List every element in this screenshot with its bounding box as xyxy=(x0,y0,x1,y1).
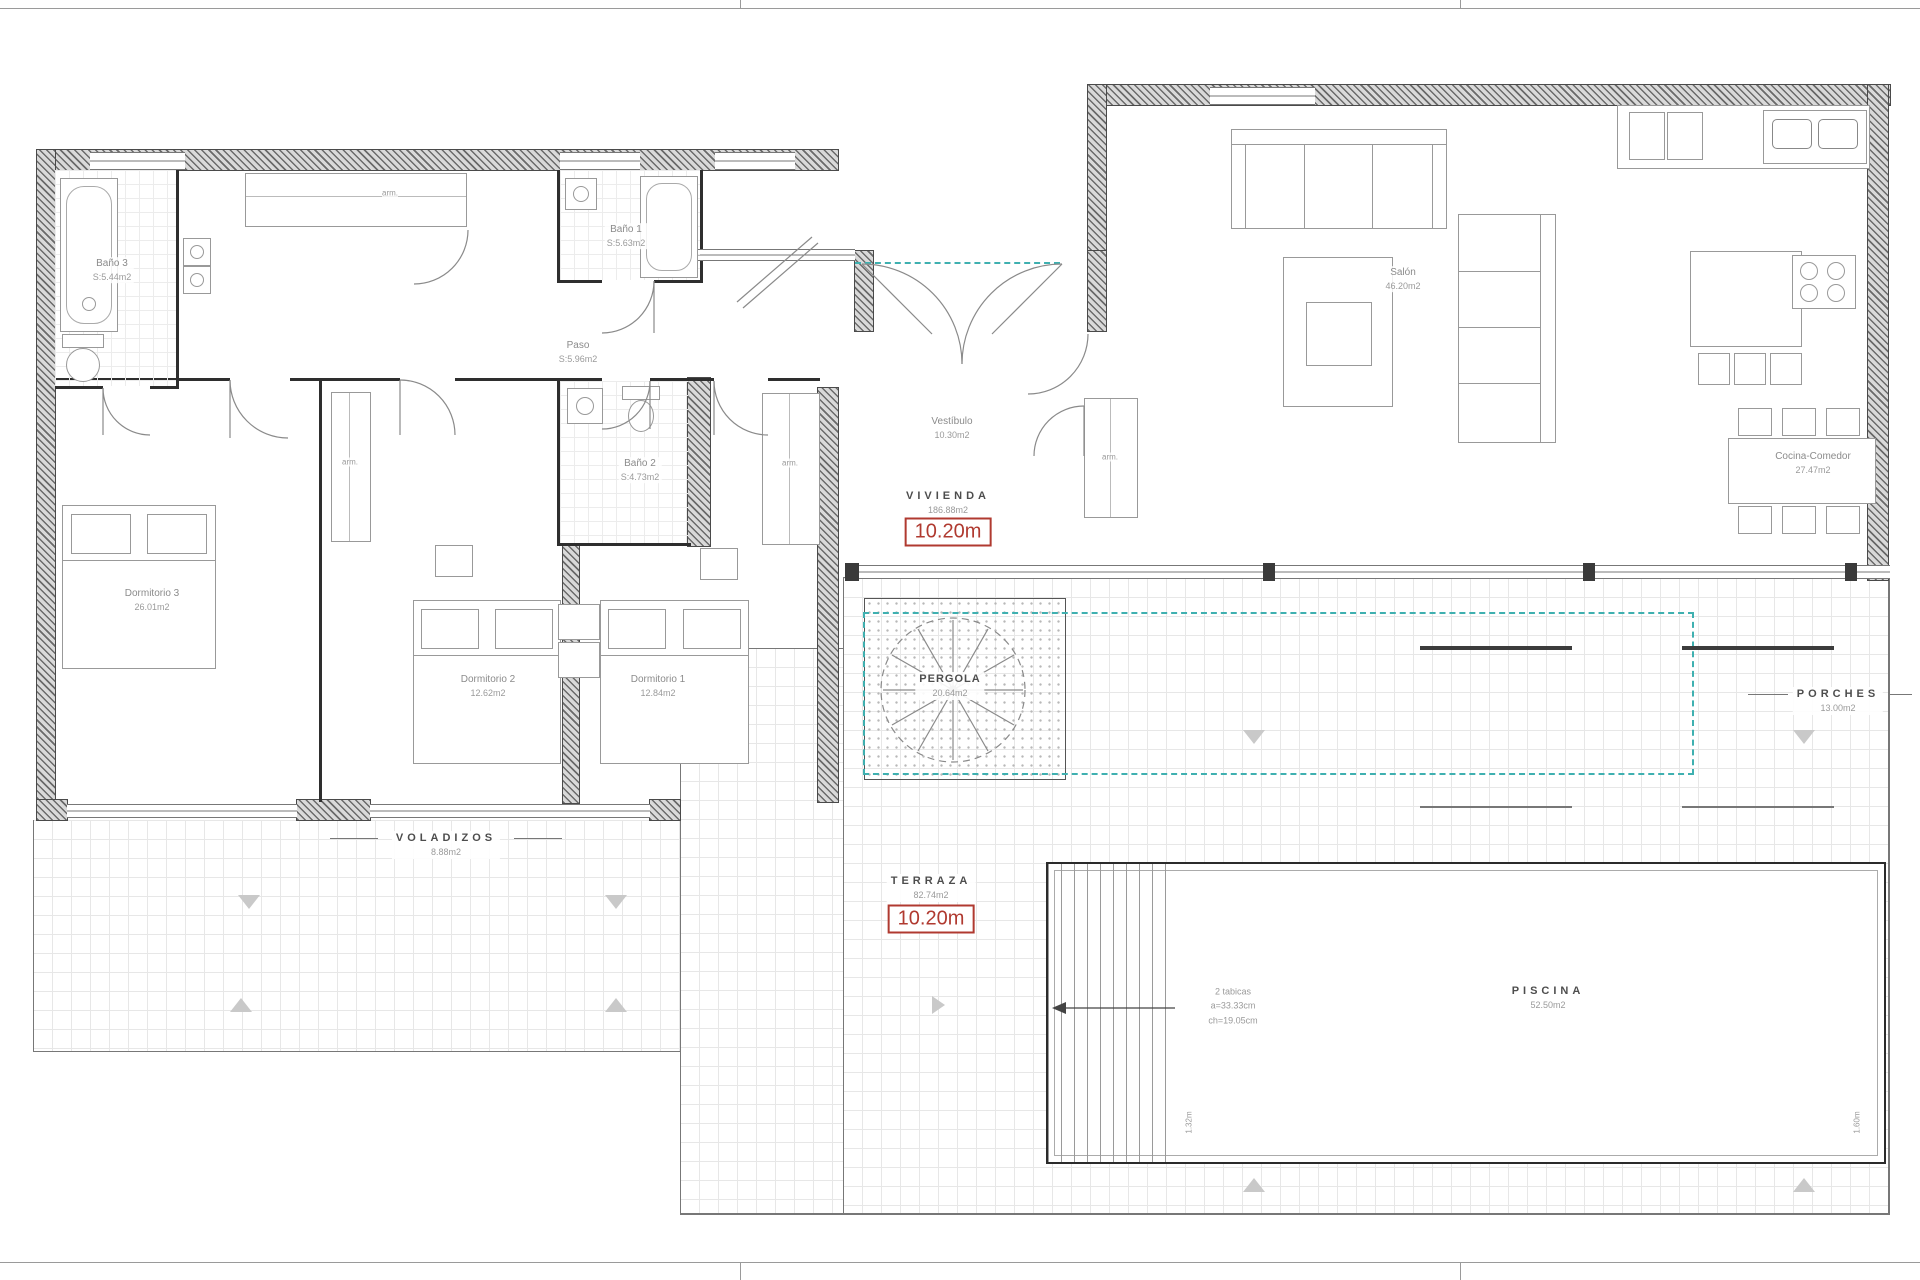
level-marker xyxy=(1243,730,1265,744)
room-label-vestibulo: Vestíbulo10.30m2 xyxy=(929,415,974,441)
level-marker xyxy=(932,996,945,1014)
floor-plan-sheet: arm. arm. arm. arm. xyxy=(0,0,1920,1280)
plan-linework xyxy=(0,0,1920,1280)
zone-label-terraza: TERRAZA82.74m2 xyxy=(887,874,976,902)
level-marker xyxy=(238,895,260,909)
label-flank-line xyxy=(330,838,378,839)
level-marker xyxy=(1793,730,1815,744)
label-flank-line xyxy=(514,838,562,839)
zone-label-piscina: PISCINA52.50m2 xyxy=(1508,984,1589,1012)
terraza-height-box: 10.20m xyxy=(888,905,975,934)
vivienda-height-box: 10.20m xyxy=(905,518,992,547)
level-marker xyxy=(230,998,252,1012)
room-label-dormitorio1: Dormitorio 112.84m2 xyxy=(629,673,687,699)
room-label-salon: Salón46.20m2 xyxy=(1383,266,1422,292)
level-marker xyxy=(1243,1178,1265,1192)
level-marker xyxy=(1793,1178,1815,1192)
label-flank-line xyxy=(1748,694,1788,695)
pool-steps-annotation: 2 tabicas a=33.33cm ch=19.05cm xyxy=(1208,984,1257,1027)
zone-label-vivienda: VIVIENDA186.88m2 xyxy=(902,489,994,517)
label-flank-line xyxy=(1888,694,1912,695)
level-marker xyxy=(605,998,627,1012)
room-label-cocina: Cocina-Comedor27.47m2 xyxy=(1773,450,1853,476)
pool-depth-left: 1.32m xyxy=(1185,1111,1194,1133)
room-label-bano3: Baño 3S:5.44m2 xyxy=(91,257,134,283)
room-label-bano2: Baño 2S:4.73m2 xyxy=(619,457,662,483)
pool-depth-right: 1.60m xyxy=(1853,1111,1862,1133)
room-label-bano1: Baño 1S:5.63m2 xyxy=(605,223,648,249)
zone-label-porches: PORCHES13.00m2 xyxy=(1793,687,1883,715)
room-label-dormitorio3: Dormitorio 326.01m2 xyxy=(123,587,181,613)
pool-steps-arrow xyxy=(1052,1002,1175,1014)
zone-label-voladizos: VOLADIZOS8.88m2 xyxy=(392,831,500,859)
room-label-paso: PasoS:5.96m2 xyxy=(557,339,600,365)
level-marker xyxy=(605,895,627,909)
zone-label-pergola: PERGOLA20.64m2 xyxy=(915,672,984,700)
room-label-dormitorio2: Dormitorio 212.62m2 xyxy=(459,673,517,699)
